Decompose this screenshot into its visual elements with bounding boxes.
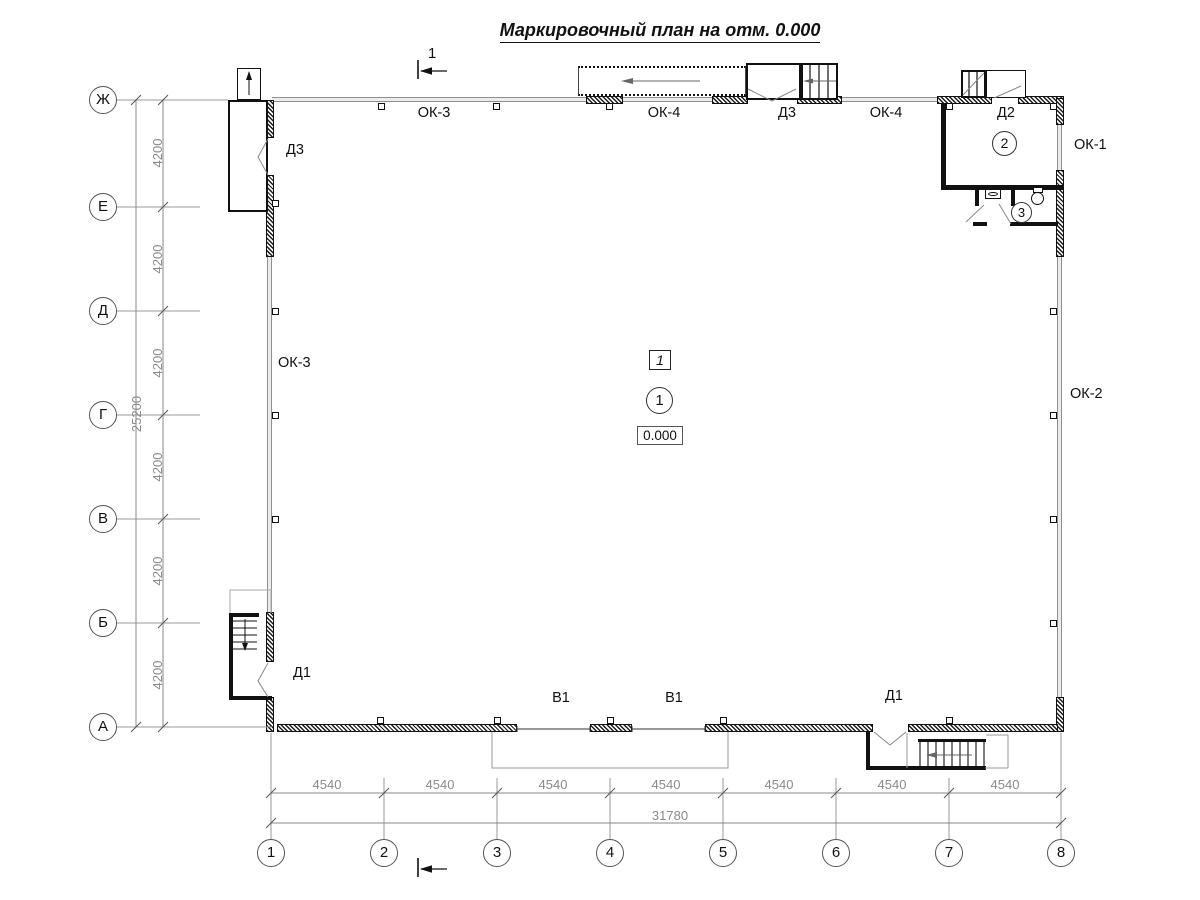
- dimension-label: 4540: [297, 777, 357, 792]
- gate-leaf-lines: [517, 726, 705, 732]
- room-number-1: 1: [646, 387, 673, 414]
- grid-axis-row: Е: [89, 193, 117, 221]
- grid-axis-row: Ж: [89, 86, 117, 114]
- door-label-d1-left: Д1: [293, 665, 311, 681]
- dimension-label: 4540: [636, 777, 696, 792]
- stair-treads-southeast: [920, 742, 984, 766]
- position-tag: 1: [649, 350, 671, 370]
- door-label-d2: Д2: [988, 105, 1024, 121]
- grid-axis-col: 3: [483, 839, 511, 867]
- section-mark-top: [418, 60, 447, 79]
- grid-axis-col: 6: [822, 839, 850, 867]
- gate-label-v1-left: В1: [544, 690, 578, 706]
- floor-plan-sheet: Маркировочный план на отм. 0.000 1 ОК-3 …: [0, 0, 1200, 900]
- window-label-ok4-right: ОК-4: [860, 105, 912, 121]
- window-label-ok4-left: ОК-4: [638, 105, 690, 121]
- stair-treads-northeast: [963, 71, 984, 97]
- door-swing-lines: [258, 86, 1021, 745]
- stair-landing-outline-southwest: [230, 590, 271, 613]
- door-label-d3-left: Д3: [286, 142, 304, 158]
- grid-axis-row: Г: [89, 401, 117, 429]
- stair-arrow-southeast: [926, 752, 972, 758]
- exit-arrow-up: [246, 71, 252, 95]
- dimension-total-label: 31780: [640, 808, 700, 823]
- dimension-label: 4540: [523, 777, 583, 792]
- dimension-label: 4200: [150, 229, 164, 289]
- dimension-label: 4540: [862, 777, 922, 792]
- dimension-label: 4200: [150, 333, 164, 393]
- window-label-ok2: ОК-2: [1070, 386, 1103, 402]
- dimension-label: 4200: [150, 541, 164, 601]
- grid-axis-col: 1: [257, 839, 285, 867]
- dimension-total-label: 25200: [129, 384, 143, 444]
- dimension-label: 4200: [150, 123, 164, 183]
- grid-axis-col: 8: [1047, 839, 1075, 867]
- door-label-d1-right: Д1: [877, 688, 911, 704]
- ramp-direction-arrow: [621, 78, 700, 84]
- dimension-label: 4200: [150, 645, 164, 705]
- grid-axis-row: А: [89, 713, 117, 741]
- stair-landing-outline-southeast: [907, 733, 1008, 768]
- drawing-lines: [0, 0, 1200, 900]
- gate-label-v1-right: В1: [657, 690, 691, 706]
- window-label-ok3-left: ОК-3: [278, 355, 311, 371]
- page-title: Маркировочный план на отм. 0.000: [440, 20, 880, 41]
- grid-axis-row: Д: [89, 297, 117, 325]
- grid-axis-row: Б: [89, 609, 117, 637]
- grid-axis-row: В: [89, 505, 117, 533]
- dimension-label: 4540: [410, 777, 470, 792]
- grid-axis-col: 7: [935, 839, 963, 867]
- room-number-3: 3: [1011, 202, 1032, 223]
- dimension-label: 4540: [975, 777, 1035, 792]
- elevation-mark: 0.000: [637, 426, 683, 445]
- grid-axis-col: 2: [370, 839, 398, 867]
- grid-axis-col: 4: [596, 839, 624, 867]
- apron-outline: [492, 732, 728, 768]
- section-number-label: 1: [428, 45, 436, 62]
- window-label-ok3-top: ОК-3: [410, 105, 458, 121]
- dimension-label: 4540: [749, 777, 809, 792]
- grid-axis-col: 5: [709, 839, 737, 867]
- section-mark-bottom: [418, 858, 447, 877]
- room-number-2: 2: [992, 131, 1017, 156]
- dimension-label: 4200: [150, 437, 164, 497]
- window-label-ok1: ОК-1: [1074, 137, 1107, 153]
- door-label-d3-top: Д3: [770, 105, 804, 121]
